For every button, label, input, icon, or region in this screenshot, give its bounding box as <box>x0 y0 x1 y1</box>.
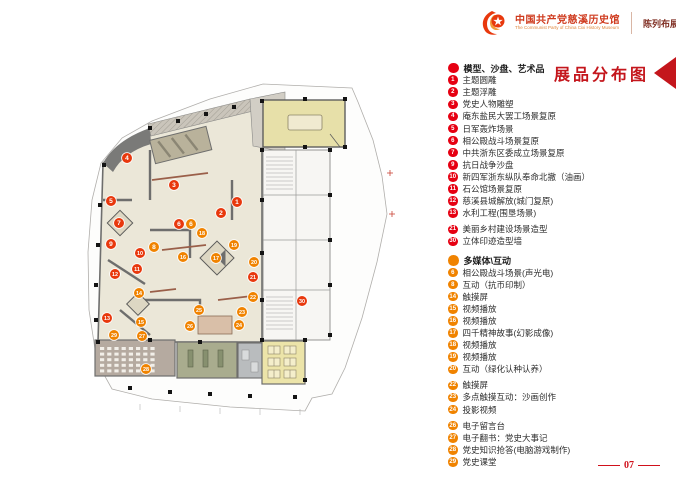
item-number-badge: 13 <box>448 208 458 218</box>
document-subtitle: 陈列布展设计施工方案 <box>643 17 676 30</box>
item-label: 党史人物雕塑 <box>463 98 514 110</box>
floor-plan-svg: 1234567910111213213068141516171819202223… <box>78 58 444 476</box>
item-label: 视频播放 <box>463 315 497 327</box>
legend-item-13: 13水利工程(围垦场景) <box>448 207 673 219</box>
item-number-badge: 30 <box>448 237 458 247</box>
legend-list: 模型、沙盘、艺术品1主题圆雕2主题浮雕3党史人物雕塑4庵东盐民大罢工场景复原5日… <box>448 62 673 468</box>
item-label: 抗日战争沙盘 <box>463 159 514 171</box>
item-label: 主题圆雕 <box>463 74 497 86</box>
item-number-badge: 3 <box>448 100 458 110</box>
item-label: 多点触摸互动：沙画创作 <box>463 391 557 403</box>
item-number-badge: 17 <box>448 328 458 338</box>
item-label: 视频播放 <box>463 339 497 351</box>
item-label: 相公殿战斗场景(声光电) <box>463 267 554 279</box>
item-label: 日军轰炸场景 <box>463 123 514 135</box>
category-dot-icon <box>448 63 459 74</box>
plan-marker-number: 23 <box>239 310 245 316</box>
item-label: 庵东盐民大罢工场景复原 <box>463 110 557 122</box>
legend-item-26: 26电子留言台 <box>448 420 673 432</box>
item-number-badge: 15 <box>448 304 458 314</box>
item-number-badge: 24 <box>448 405 458 415</box>
legend-item-19: 19视频播放 <box>448 351 673 363</box>
legend-item-12: 12慈溪县城解放(城门复原) <box>448 195 673 207</box>
item-label: 水利工程(围垦场景) <box>463 207 537 219</box>
legend-item-30: 30立体印迹造型墙 <box>448 235 673 247</box>
plan-marker-number: 26 <box>187 324 193 330</box>
plan-marker-number: 28 <box>143 367 149 373</box>
item-label: 党史知识抢答(电脑游戏制作) <box>463 444 571 456</box>
plan-marker-number: 21 <box>250 275 256 281</box>
item-number-badge: 14 <box>448 292 458 302</box>
item-number-badge: 5 <box>448 124 458 134</box>
page-dash-right <box>638 465 660 467</box>
plan-marker-number: 5 <box>109 198 113 205</box>
document-header: 中国共产党慈溪历史馆 The Communist Party of China … <box>478 9 676 37</box>
item-label: 电子留言台 <box>463 420 506 432</box>
item-number-badge: 6 <box>448 268 458 278</box>
item-label: 中共浙东区委成立场景复原 <box>463 147 565 159</box>
plan-marker-number: 1 <box>235 199 239 206</box>
plan-marker-number: 12 <box>112 272 118 278</box>
legend-item-4: 4庵东盐民大罢工场景复原 <box>448 110 673 122</box>
plan-marker-number: 17 <box>213 256 219 262</box>
museum-title-en: The Communist Party of China Cixi Histor… <box>515 26 620 31</box>
item-label: 党史课堂 <box>463 456 497 468</box>
plan-marker-number: 10 <box>137 251 143 257</box>
item-number-badge: 20 <box>448 365 458 375</box>
legend-item-11: 11石公馆场景复原 <box>448 183 673 195</box>
legend-item-17: 17四千精神故事(幻影成像) <box>448 327 673 339</box>
plan-marker-number: 6 <box>177 221 181 228</box>
floor-plan: 1234567910111213213068141516171819202223… <box>78 58 444 476</box>
plan-marker-number: 15 <box>138 320 144 326</box>
item-number-badge: 18 <box>448 340 458 350</box>
item-number-badge: 6 <box>448 136 458 146</box>
category-label: 多媒体\互动 <box>464 254 512 267</box>
item-label: 电子翻书：党史大事记 <box>463 432 548 444</box>
plan-marker-number: 7 <box>117 220 121 227</box>
plan-marker-number: 25 <box>196 308 202 314</box>
item-label: 视频播放 <box>463 351 497 363</box>
plan-marker-number: 29 <box>111 333 117 339</box>
plan-marker-number: 13 <box>104 316 110 322</box>
item-number-badge: 27 <box>448 433 458 443</box>
item-label: 新四军浙东纵队奉命北撤（油画） <box>463 171 591 183</box>
plan-marker-number: 3 <box>172 182 176 189</box>
legend-item-24: 24投影视频 <box>448 404 673 416</box>
item-label: 相公殿战斗场景复原 <box>463 135 540 147</box>
plan-marker-number: 11 <box>134 267 140 273</box>
legend-category-1: 多媒体\互动 <box>448 254 673 266</box>
legend-item-7: 7中共浙东区委成立场景复原 <box>448 147 673 159</box>
legend-item-27: 27电子翻书：党史大事记 <box>448 432 673 444</box>
item-number-badge: 4 <box>448 112 458 122</box>
item-number-badge: 23 <box>448 393 458 403</box>
plan-marker-number: 6 <box>189 221 193 228</box>
legend-category-0: 模型、沙盘、艺术品 <box>448 62 673 74</box>
item-number-badge: 22 <box>448 381 458 391</box>
legend-item-28: 28党史知识抢答(电脑游戏制作) <box>448 444 673 456</box>
plan-marker-number: 9 <box>109 241 113 248</box>
item-number-badge: 12 <box>448 196 458 206</box>
header-divider <box>631 12 632 34</box>
item-number-badge: 7 <box>448 148 458 158</box>
item-label: 美丽乡村建设场景造型 <box>463 223 548 235</box>
item-number-badge: 1 <box>448 75 458 85</box>
plan-marker-number: 20 <box>251 260 257 266</box>
page-dash-left <box>598 465 620 467</box>
party-emblem-icon <box>478 9 508 37</box>
plan-marker-number: 16 <box>180 255 186 261</box>
plan-marker-number: 19 <box>231 243 237 249</box>
legend-item-3: 3党史人物雕塑 <box>448 98 673 110</box>
plan-marker-number: 4 <box>125 155 129 162</box>
plan-marker-number: 22 <box>250 295 256 301</box>
plan-marker-number: 24 <box>236 323 242 329</box>
legend-item-8: 8互动（抗币印制） <box>448 279 673 291</box>
item-number-badge: 10 <box>448 172 458 182</box>
item-number-badge: 28 <box>448 445 458 455</box>
legend-item-5: 5日军轰炸场景 <box>448 122 673 134</box>
legend-item-6: 6相公殿战斗场景(声光电) <box>448 267 673 279</box>
item-label: 立体印迹造型墙 <box>463 235 523 247</box>
item-number-badge: 26 <box>448 421 458 431</box>
item-number-badge: 11 <box>448 184 458 194</box>
item-label: 主题浮雕 <box>463 86 497 98</box>
item-number-badge: 19 <box>448 352 458 362</box>
item-label: 投影视频 <box>463 404 497 416</box>
legend-item-18: 18视频播放 <box>448 339 673 351</box>
legend-item-9: 9抗日战争沙盘 <box>448 159 673 171</box>
item-number-badge: 21 <box>448 225 458 235</box>
item-label: 视频播放 <box>463 303 497 315</box>
category-label: 模型、沙盘、艺术品 <box>464 62 545 75</box>
legend-item-14: 14触摸屏 <box>448 291 673 303</box>
item-label: 石公馆场景复原 <box>463 183 523 195</box>
plan-marker-number: 2 <box>219 210 223 217</box>
item-number-badge: 16 <box>448 316 458 326</box>
item-label: 触摸屏 <box>463 291 489 303</box>
legend-item-21: 21美丽乡村建设场景造型 <box>448 223 673 235</box>
plan-marker-number: 8 <box>152 244 156 251</box>
legend-item-16: 16视频播放 <box>448 315 673 327</box>
item-label: 四千精神故事(幻影成像) <box>463 327 554 339</box>
plan-marker-number: 30 <box>299 299 305 305</box>
page-number: 07 <box>598 460 660 471</box>
item-label: 互动（抗币印制） <box>463 279 531 291</box>
plan-marker-number: 14 <box>136 291 142 297</box>
item-number-badge: 8 <box>448 280 458 290</box>
legend-item-1: 1主题圆雕 <box>448 74 673 86</box>
legend-item-10: 10新四军浙东纵队奉命北撤（油画） <box>448 171 673 183</box>
item-label: 触摸屏 <box>463 379 489 391</box>
category-dot-icon <box>448 255 459 266</box>
item-label: 慈溪县城解放(城门复原) <box>463 195 554 207</box>
item-number-badge: 9 <box>448 160 458 170</box>
legend-item-20: 20互动（绿化认种认养） <box>448 363 673 375</box>
plan-marker-number: 18 <box>199 231 205 237</box>
legend-item-2: 2主题浮雕 <box>448 86 673 98</box>
page-number-value: 07 <box>624 460 634 471</box>
legend-item-15: 15视频播放 <box>448 303 673 315</box>
item-number-badge: 29 <box>448 457 458 467</box>
plan-marker-number: 27 <box>139 334 145 340</box>
item-number-badge: 2 <box>448 87 458 97</box>
legend-item-6: 6相公殿战斗场景复原 <box>448 135 673 147</box>
item-label: 互动（绿化认种认养） <box>463 363 548 375</box>
legend-item-22: 22触摸屏 <box>448 379 673 391</box>
legend-item-23: 23多点触摸互动：沙画创作 <box>448 391 673 403</box>
